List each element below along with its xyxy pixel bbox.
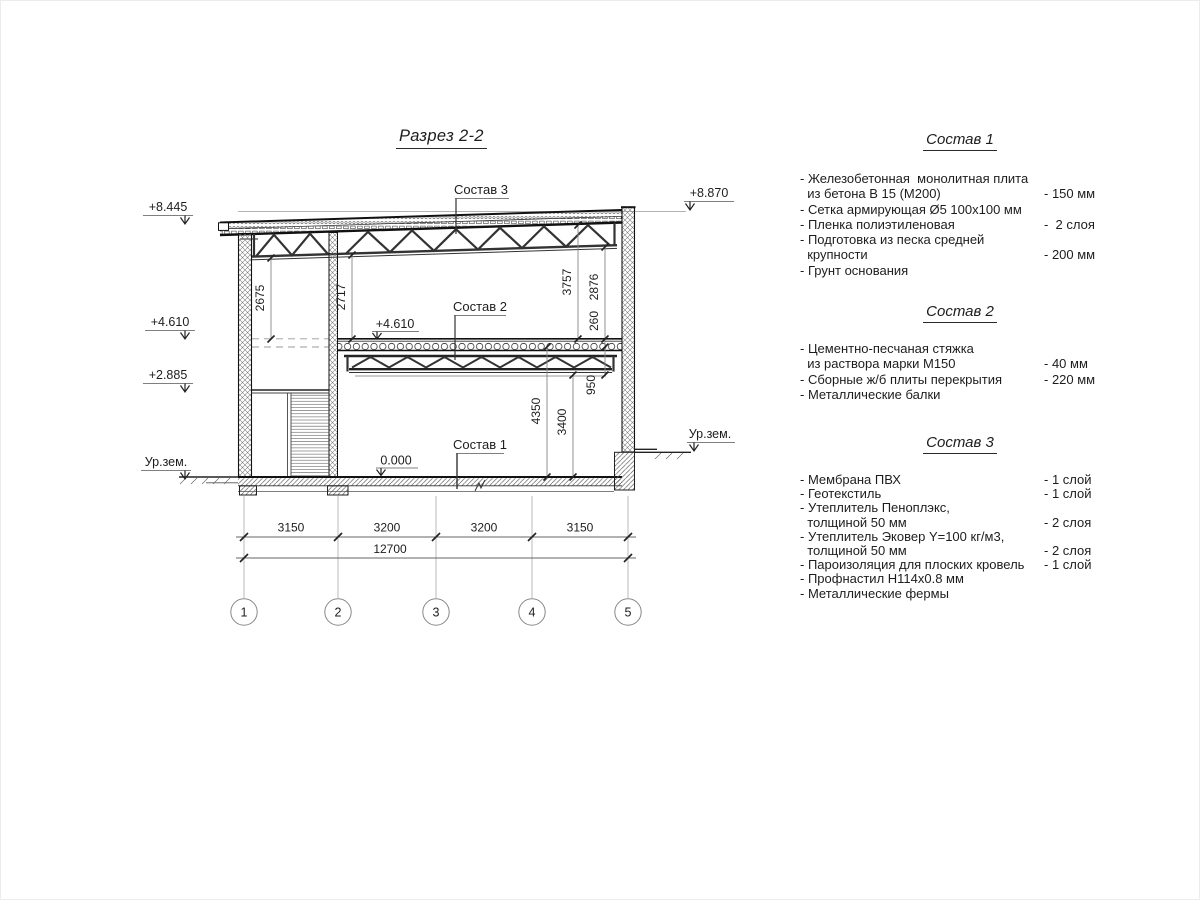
spec-item-text: - Утеплитель Пеноплэкс, — [800, 500, 950, 515]
spec-item-text: - Цементно-песчаная стяжка — [800, 341, 974, 356]
spec-title: Состав 1 — [790, 131, 1130, 148]
dim-3757: 3757 — [560, 268, 574, 295]
spec-item-list: - Железобетонная монолитная плита из бет… — [790, 171, 1130, 278]
spec-block-sostav-2: Состав 2 - Цементно-песчаная стяжка из р… — [790, 303, 1130, 402]
axis-bubbles: 1 2 3 4 5 — [231, 599, 641, 625]
spec-item: - Подготовка из песка средней — [790, 232, 1130, 247]
spec-item: из раствора марки М150- 40 мм — [790, 356, 1130, 371]
spec-item: - Железобетонная монолитная плита — [790, 171, 1130, 186]
span-dim: 3150 — [567, 521, 594, 535]
elev-ground-left: Ур.зем. — [145, 455, 187, 469]
leader-sostav2: Состав 2 — [453, 299, 507, 314]
spec-item: крупности- 200 мм — [790, 247, 1130, 262]
floor-truss-diagonals — [352, 357, 611, 368]
spec-item-text: - Утеплитель Эковер Y=100 кг/м3, — [800, 529, 1004, 544]
right-wall — [622, 207, 635, 452]
spec-item-text: из бетона В 15 (М200) — [800, 186, 941, 201]
dim-2675: 2675 — [253, 284, 267, 311]
axis-number: 4 — [529, 606, 536, 620]
dim-4350: 4350 — [529, 397, 543, 424]
dim-950: 950 — [584, 375, 598, 395]
span-dim: 3200 — [471, 521, 498, 535]
spec-block-sostav-1: Состав 1 - Железобетонная монолитная пли… — [790, 131, 1130, 278]
spec-item-value: - 40 мм — [1044, 356, 1088, 371]
span-dim: 3200 — [374, 521, 401, 535]
spec-item-value: - 150 мм — [1044, 186, 1095, 201]
spec-item-text: толщиной 50 мм — [800, 543, 907, 558]
axis-number: 3 — [433, 606, 440, 620]
dim-2876: 2876 — [587, 273, 601, 300]
spec-item-text: - Сетка армирующая Ø5 100х100 мм — [800, 202, 1022, 217]
interior-wall — [329, 233, 338, 478]
elev-roof-left: +8.445 — [149, 200, 188, 214]
spec-item: - Сборные ж/б плиты перекрытия- 220 мм — [790, 372, 1130, 387]
leader-sostav3: Состав 3 — [454, 182, 508, 197]
roof-assembly — [219, 207, 636, 239]
spec-item-text: толщиной 50 мм — [800, 515, 907, 530]
spec-item: - Цементно-песчаная стяжка — [790, 341, 1130, 356]
staircase — [252, 390, 330, 477]
span-dim: 3150 — [278, 521, 305, 535]
spec-item-value: - 2 слоя — [1044, 544, 1091, 558]
spec-item: - Мембрана ПВХ- 1 слой — [790, 473, 1130, 487]
spec-title: Состав 3 — [790, 434, 1130, 451]
mid-floor-assembly — [337, 339, 622, 376]
spec-item: - Грунт основания — [790, 263, 1130, 278]
axis-number: 1 — [241, 606, 248, 620]
dim-3400: 3400 — [555, 408, 569, 435]
axis-number: 2 — [335, 606, 342, 620]
spec-item-value: - 220 мм — [1044, 372, 1095, 387]
spec-item: - Утеплитель Пеноплэкс, — [790, 501, 1130, 515]
ground-floor — [179, 449, 691, 495]
spec-item: - Металлические балки — [790, 387, 1130, 402]
elev-mid-inner: +4.610 — [376, 317, 415, 331]
spec-title: Состав 2 — [790, 303, 1130, 320]
elev-floor-zero: 0.000 — [380, 454, 411, 468]
spec-item-text: - Металлические фермы — [800, 586, 949, 601]
spec-item-text: - Подготовка из песка средней — [800, 232, 984, 247]
spec-item-value: - 2 слоя — [1044, 217, 1095, 232]
spec-item-text: крупности — [800, 247, 868, 262]
spec-item: толщиной 50 мм- 2 слоя — [790, 544, 1130, 558]
axis-grid: 3150 3200 3200 3150 12700 1 2 3 4 5 — [231, 496, 641, 625]
elev-ground-right: Ур.зем. — [689, 427, 731, 441]
spec-item: - Профнастил Н114х0.8 мм — [790, 572, 1130, 586]
dim-2717: 2717 — [334, 283, 348, 310]
spec-item: - Пароизоляция для плоских кровель- 1 сл… — [790, 558, 1130, 572]
spec-item-list: - Мембрана ПВХ- 1 слой - Геотекстиль- 1 … — [790, 473, 1130, 601]
spec-item-text: - Сборные ж/б плиты перекрытия — [800, 372, 1002, 387]
total-dim: 12700 — [373, 542, 407, 556]
spec-item-text: - Металлические балки — [800, 387, 940, 402]
spec-item-text: - Железобетонная монолитная плита — [800, 171, 1028, 186]
spec-item-text: - Мембрана ПВХ — [800, 472, 901, 487]
spec-item: толщиной 50 мм- 2 слоя — [790, 516, 1130, 530]
left-wall — [239, 234, 252, 478]
dim-260: 260 — [587, 311, 601, 331]
spec-item-value: - 1 слой — [1044, 487, 1092, 501]
stair-treads — [292, 394, 330, 477]
spec-item-text: - Грунт основания — [800, 263, 908, 278]
spec-item-value: - 200 мм — [1044, 247, 1095, 262]
spec-item-value: - 1 слой — [1044, 473, 1092, 487]
spec-item-text: - Профнастил Н114х0.8 мм — [800, 571, 964, 586]
spec-item-text: - Пароизоляция для плоских кровель — [800, 557, 1024, 572]
eave-cap — [219, 223, 229, 231]
right-foundation — [615, 452, 635, 490]
drawing-sheet: Разрез 2-2 — [0, 0, 1200, 900]
spec-item-text: - Пленка полиэтиленовая — [800, 217, 955, 232]
spec-item: - Пленка полиэтиленовая- 2 слоя — [790, 217, 1130, 232]
spec-item: - Геотекстиль- 1 слой — [790, 487, 1130, 501]
spec-item: - Утеплитель Эковер Y=100 кг/м3, — [790, 530, 1130, 544]
leader-sostav1: Состав 1 — [453, 437, 507, 452]
spec-item: - Металлические фермы — [790, 587, 1130, 601]
foundation-pad — [240, 486, 257, 495]
spec-item-text: - Геотекстиль — [800, 486, 881, 501]
elev-roof-right: +8.870 — [690, 186, 729, 200]
spec-item-text: из раствора марки М150 — [800, 356, 956, 371]
foundation-pad — [328, 486, 349, 495]
spec-item: - Сетка армирующая Ø5 100х100 мм — [790, 202, 1130, 217]
hollow-core-slab — [337, 342, 622, 351]
spec-item-value: - 1 слой — [1044, 558, 1092, 572]
spec-item-list: - Цементно-песчаная стяжка из раствора м… — [790, 341, 1130, 402]
elev-mid-left: +4.610 — [151, 315, 190, 329]
spec-block-sostav-3: Состав 3 - Мембрана ПВХ- 1 слой - Геотек… — [790, 434, 1130, 601]
elev-landing-left: +2.885 — [149, 368, 188, 382]
spec-item-value: - 2 слоя — [1044, 516, 1091, 530]
spec-item: из бетона В 15 (М200)- 150 мм — [790, 186, 1130, 201]
axis-number: 5 — [625, 606, 632, 620]
